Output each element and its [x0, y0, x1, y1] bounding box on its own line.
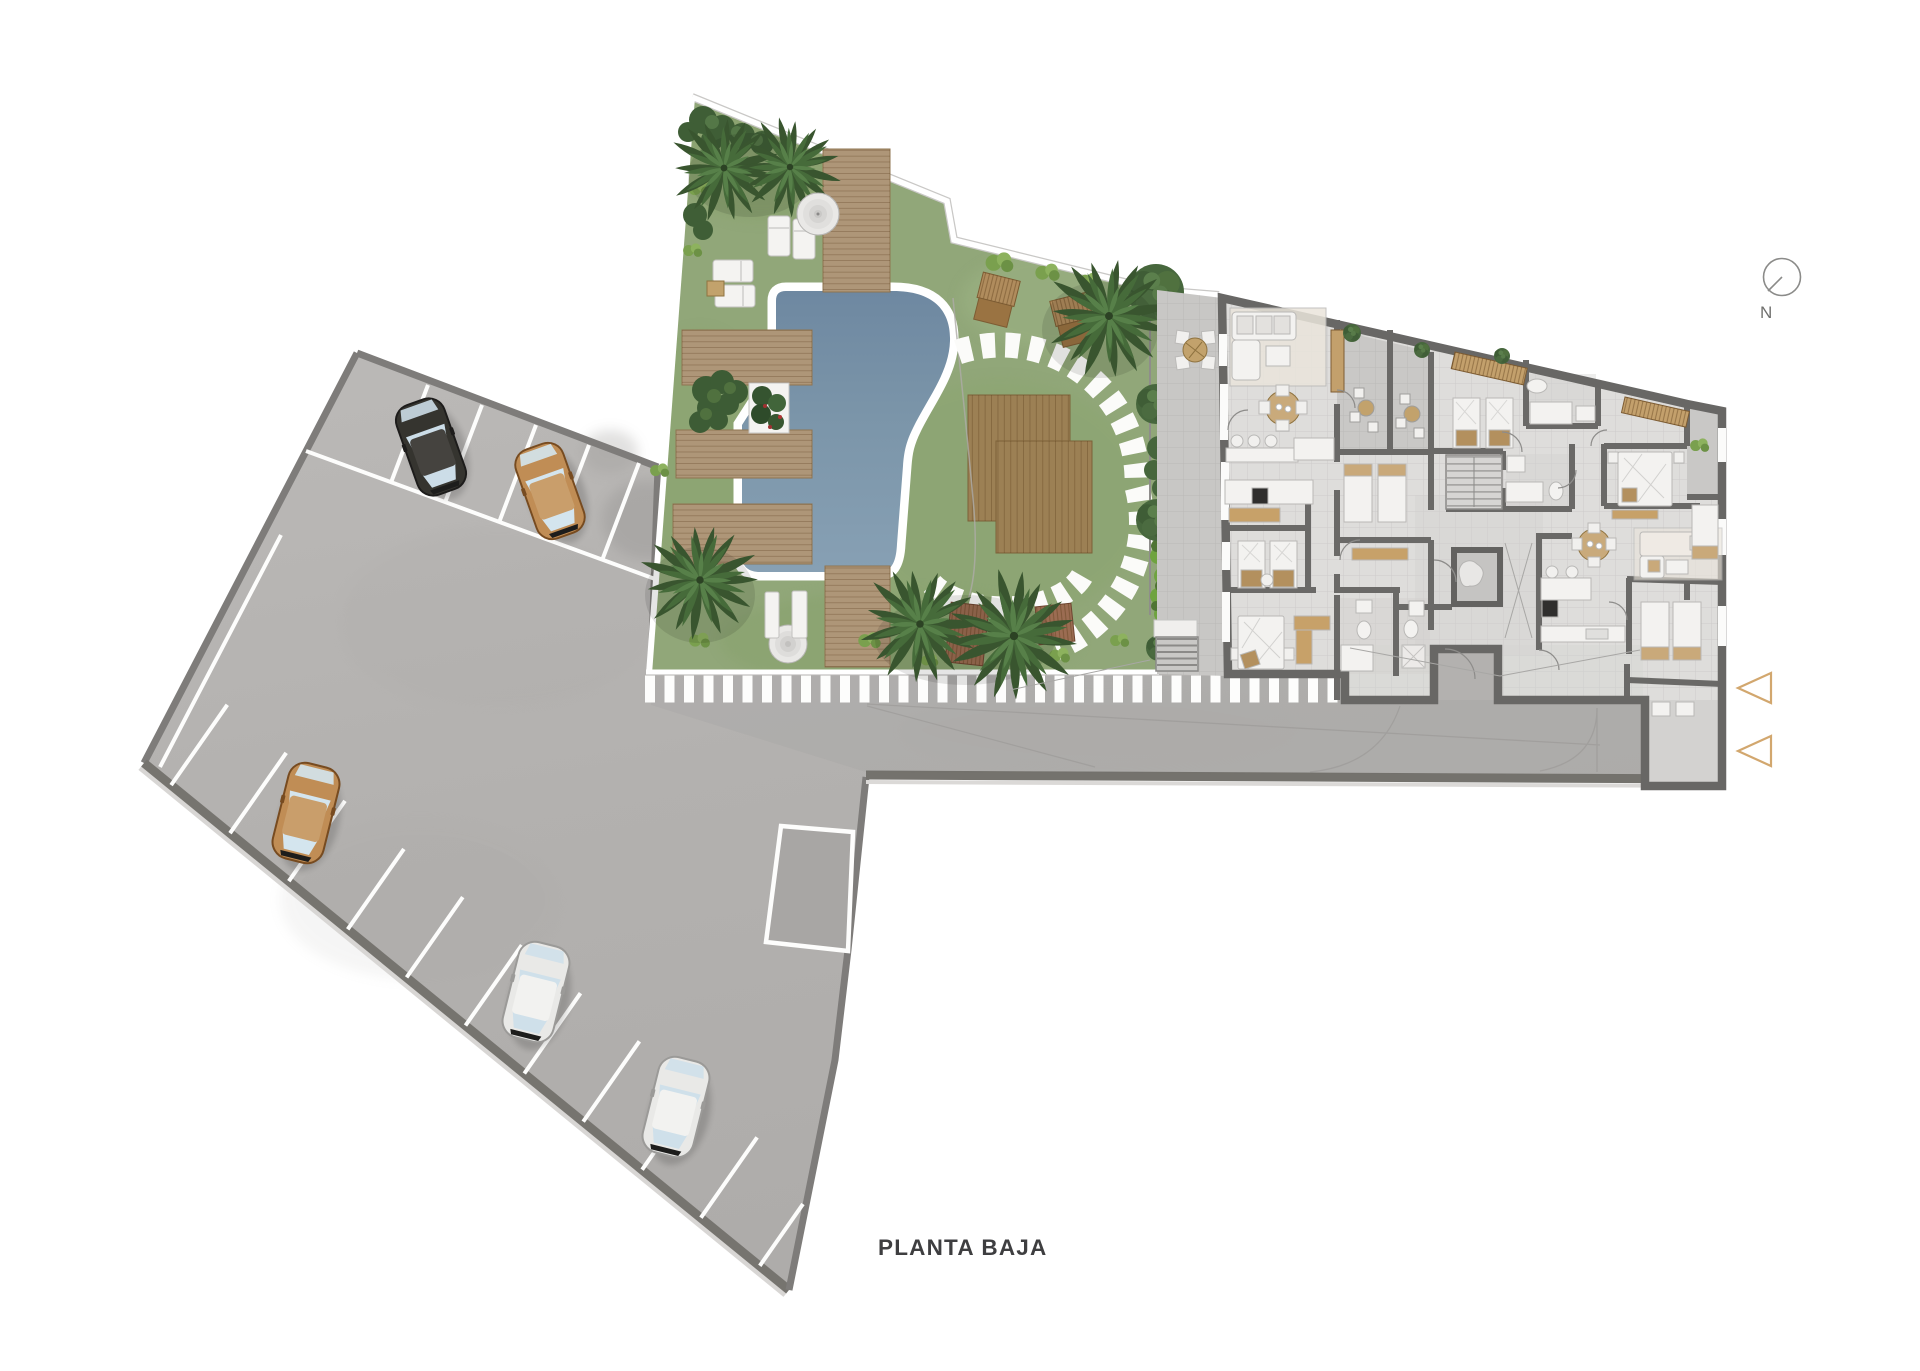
- svg-text:N: N: [1760, 303, 1772, 322]
- svg-text:PLANTA BAJA: PLANTA BAJA: [878, 1235, 1047, 1260]
